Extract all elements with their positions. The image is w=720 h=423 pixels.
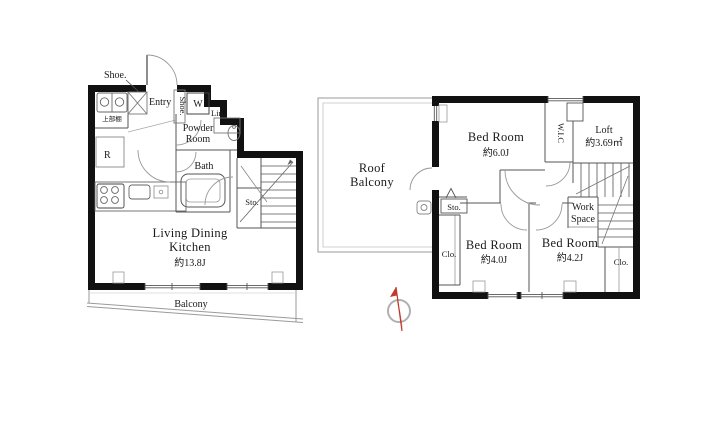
floor1: Shoe. Entry Shoe. W Lin. Powder Room Bat… [87,55,303,323]
north-compass-icon [388,287,410,331]
kitchen-counter [95,182,186,211]
label-work2: Space [571,214,595,225]
floor2: Roof Balcony Bed Room 約6.0J W.I.C Loft 約… [318,96,640,299]
label-bed42-area: 約4.2J [557,251,584,264]
shoe-cabinet-icon [128,92,147,114]
label-entry: Entry [149,97,171,108]
label-bed6-name: Bed Room [468,130,524,144]
floor-plan-page: Shoe. Entry Shoe. W Lin. Powder Room Bat… [0,0,720,423]
label-storage-1f: Sto. [245,197,258,207]
label-loft-name: Loft [595,125,612,136]
floor2-door-arcs [501,162,570,230]
label-washer: W [193,99,203,110]
label-ldk1: Living Dining [152,226,228,240]
floor1-sill-notches [113,272,283,283]
label-loft-area: 約3.69㎡ [585,136,623,149]
entry-door-icon [147,55,177,85]
label-powder2: Room [186,134,211,145]
label-clo-right: Clo. [614,257,628,267]
label-balcony-1f: Balcony [174,299,207,310]
label-bath: Bath [195,161,214,172]
label-ldk-area: 約13.8J [174,256,205,269]
label-roof1: Roof [359,161,386,175]
label-linen: Lin. [211,108,225,118]
floor1-openings [145,84,268,290]
balcony-door-arc [410,168,432,190]
label-wic: W.I.C [556,123,566,143]
stairs-up-arrow-icon [288,160,294,166]
floor1-labels: Shoe. Entry Shoe. W Lin. Powder Room Bat… [102,70,258,310]
label-shoe-top: Shoe. [104,70,127,81]
label-powder1: Powder [183,123,214,134]
outdoor-unit-icon [417,201,431,214]
label-storage-2f: Sto. [447,202,460,212]
label-roof2: Balcony [350,175,394,189]
label-bed40-name: Bed Room [466,238,522,252]
label-bed6-area: 約6.0J [483,146,510,159]
floor1-stairs [240,160,296,223]
label-bed40-area: 約4.0J [481,253,508,266]
stove-burner-icon [101,187,108,194]
label-bed42-name: Bed Room [542,236,598,250]
label-clo-left: Clo. [442,249,456,259]
label-work1: Work [572,202,594,213]
sink-icon [129,185,150,199]
bathtub-icon [181,174,225,207]
label-ldk2: Kitchen [169,240,211,254]
label-shoe-side: Shoe. [178,96,188,115]
label-fridge: R [104,150,111,161]
washstand-icon [97,93,127,112]
floor2-labels: Roof Balcony Bed Room 約6.0J W.I.C Loft 約… [350,123,628,267]
label-upper-shelf: 上部棚 [102,114,122,123]
